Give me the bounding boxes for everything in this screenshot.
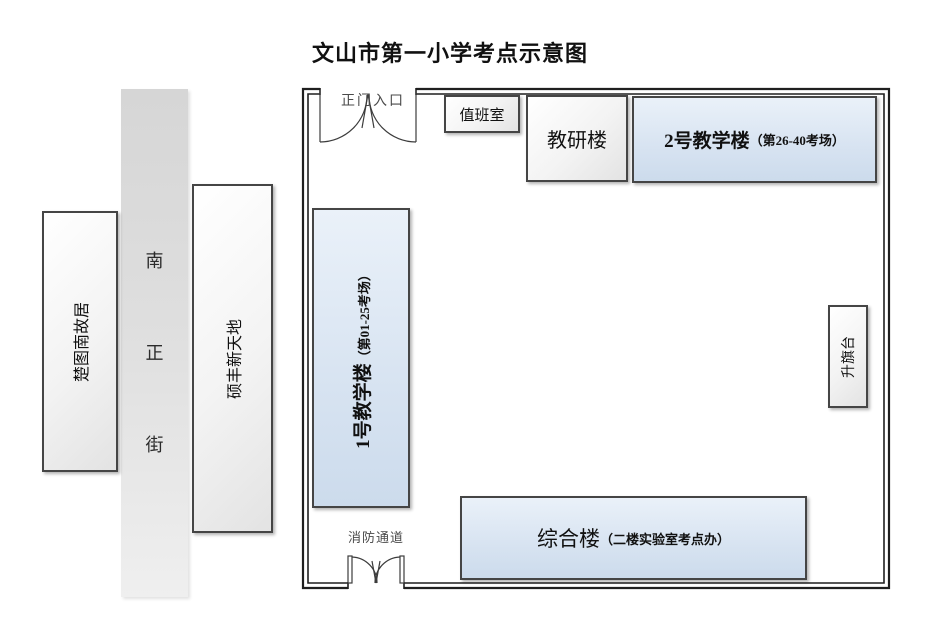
fire-gate-doors	[348, 556, 404, 583]
page-title: 文山市第一小学考点示意图	[0, 36, 900, 68]
main-gate-label: 正门入口	[330, 90, 416, 108]
building-label: 1号教学楼	[353, 363, 374, 449]
street-char: 南	[146, 247, 164, 273]
street-name: 南 正 街	[121, 247, 188, 457]
building-research: 教研楼	[526, 95, 628, 182]
building-label: 升旗台	[838, 336, 858, 378]
building-complex: 综合楼（二楼实验室考点办）	[460, 496, 807, 580]
street-char: 街	[146, 431, 164, 457]
building-teaching-2: 2号教学楼（第26-40考场）	[632, 96, 877, 183]
fire-gate-label: 消防通道	[333, 527, 419, 543]
building-sublabel: （二楼实验室考点办）	[600, 529, 730, 548]
street-nanzheng: 南 正 街	[121, 89, 188, 597]
building-label: 综合楼	[537, 523, 600, 553]
building-label: 2号教学楼	[664, 126, 750, 153]
building-sublabel: （第01-25考场）	[357, 268, 372, 363]
building-label: 值班室	[459, 104, 504, 125]
building-label: 楚图南故居	[68, 301, 92, 381]
building-shuofeng-plaza: 硕丰新天地	[192, 184, 273, 533]
building-label: 硕丰新天地	[221, 318, 245, 398]
building-flag-platform: 升旗台	[828, 305, 868, 408]
building-duty-room: 值班室	[444, 95, 520, 133]
street-char: 正	[146, 339, 164, 365]
building-label-rotated: 1号教学楼（第01-25考场）	[348, 268, 375, 449]
exam-site-map: 文山市第一小学考点示意图 南 正 街 楚图南故居 硕丰新天地	[0, 0, 930, 628]
building-sublabel: （第26-40考场）	[750, 130, 845, 149]
building-label: 教研楼	[547, 124, 607, 153]
building-chutunan-residence: 楚图南故居	[42, 211, 118, 472]
building-teaching-1: 1号教学楼（第01-25考场）	[312, 208, 410, 508]
